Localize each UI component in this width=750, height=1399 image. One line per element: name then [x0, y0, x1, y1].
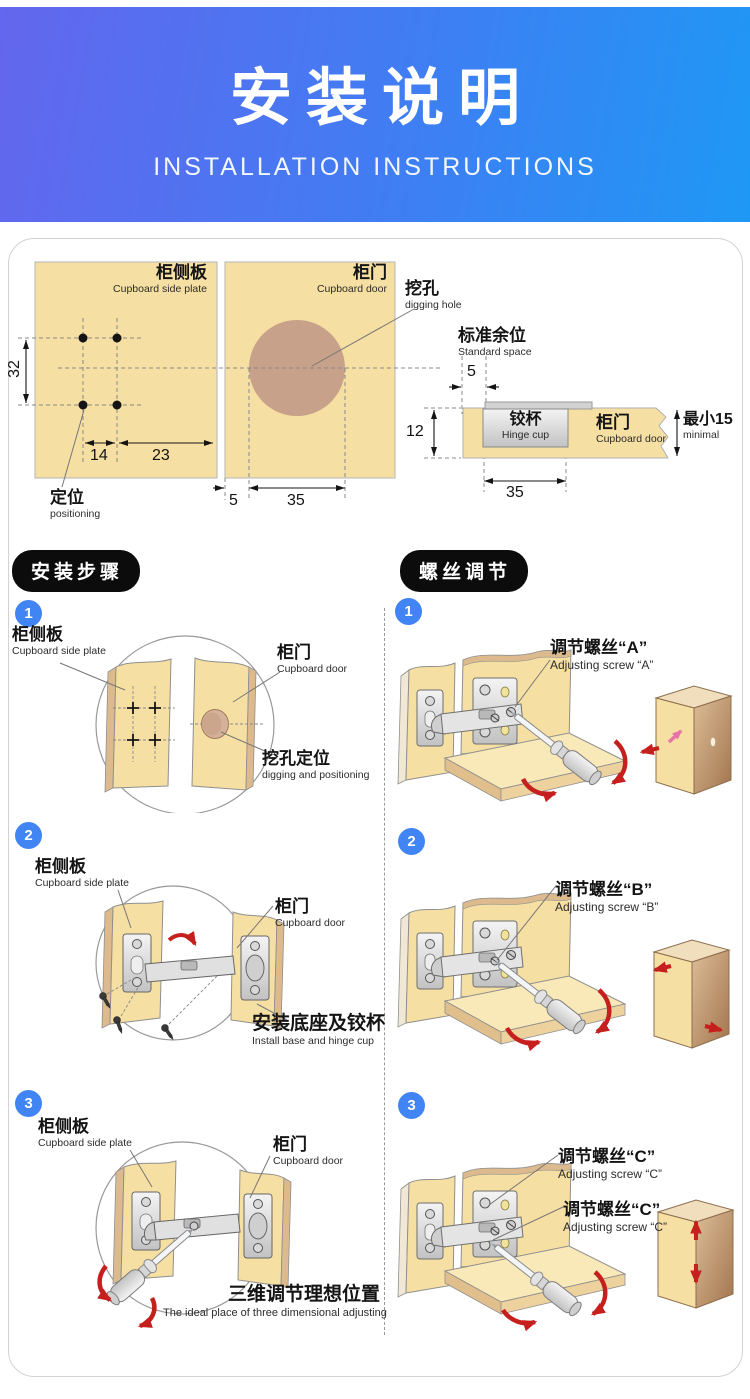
- minimal-label: 最小15 minimal: [683, 411, 733, 442]
- dim-edge-5: 5: [229, 492, 238, 510]
- label-cn: 调节螺丝“A”: [550, 638, 653, 658]
- digging-hole-label: 挖孔 digging hole: [405, 279, 462, 311]
- label-cn: 调节螺丝“C”: [563, 1200, 667, 1220]
- label-en: Adjusting screw “B”: [555, 900, 658, 914]
- dim-w2-23: 23: [152, 447, 170, 465]
- note-cn: 安装底座及铰杯: [252, 1013, 385, 1035]
- dim-space-5: 5: [467, 363, 476, 381]
- label-cn: 调节螺丝“C”: [558, 1147, 662, 1167]
- cabinet-box: [658, 1200, 733, 1308]
- page-subtitle: INSTALLATION INSTRUCTIONS: [153, 153, 597, 182]
- page-title: 安装说明: [216, 47, 534, 137]
- label-en: Cupboard side plate: [12, 645, 106, 658]
- minimal-cn: 最小15: [683, 411, 733, 429]
- install-step2-note: 安装底座及铰杯 Install base and hinge cup: [252, 1013, 385, 1047]
- install-step3-note-en: The ideal place of three dimensional adj…: [163, 1307, 387, 1320]
- label-cn: 柜门: [273, 1135, 343, 1155]
- label-en: Adjusting screw “C”: [563, 1220, 667, 1234]
- digging-label-en: digging hole: [405, 299, 462, 312]
- adjust-section-title: 螺丝调节: [400, 550, 528, 592]
- install-step3-note-cn: 三维调节理想位置: [228, 1284, 380, 1306]
- positioning-cn: 定位: [50, 488, 100, 508]
- install-section-title: 安装步骤: [12, 550, 140, 592]
- label-en: Cupboard door: [273, 1155, 343, 1168]
- standard-space-label: 标准余位 Standard space: [458, 326, 532, 358]
- cup-label-cn: 铰杯: [483, 411, 568, 429]
- label-cn: 柜侧板: [38, 1117, 132, 1137]
- hinge-cup: [246, 955, 264, 981]
- label-en: Cupboard door: [277, 663, 347, 676]
- door-label-cn: 柜门: [250, 263, 387, 283]
- label-cn: 柜侧板: [35, 857, 129, 877]
- side-plate-label: 柜侧板 Cupboard side plate: [70, 263, 207, 295]
- dim-thick-12: 12: [406, 423, 424, 441]
- door-dot: [711, 738, 716, 747]
- dim-hole-35: 35: [287, 492, 305, 510]
- adjust-step3-badge: 3: [398, 1092, 425, 1119]
- cross-door-en: Cupboard door: [596, 433, 666, 446]
- minimal-en: minimal: [683, 429, 733, 442]
- label-en: Adjusting screw “A”: [550, 658, 653, 672]
- standard-label-en: Standard space: [458, 346, 532, 359]
- cup-label-en: Hinge cup: [483, 429, 568, 442]
- install-step1-note: 挖孔定位 digging and positioning: [262, 749, 369, 781]
- label-en: Cupboard door: [275, 917, 345, 930]
- adjust-step3-label2: 调节螺丝“C” Adjusting screw “C”: [563, 1200, 667, 1234]
- page: 安装说明 INSTALLATION INSTRUCTIONS: [0, 0, 750, 1399]
- install-step2-door-label: 柜门 Cupboard door: [275, 897, 345, 929]
- hinge-cup-flange: [485, 402, 592, 409]
- dim-cup-35: 35: [506, 484, 524, 502]
- side-plate-label-en: Cupboard side plate: [70, 283, 207, 296]
- install-step2-side-label: 柜侧板 Cupboard side plate: [35, 857, 129, 889]
- standard-label-cn: 标准余位: [458, 326, 532, 346]
- note-cn: 挖孔定位: [262, 749, 369, 769]
- label-cn: 柜门: [275, 897, 345, 917]
- note-en: Install base and hinge cup: [252, 1035, 385, 1048]
- label-en: Adjusting screw “C”: [558, 1167, 662, 1181]
- install-step1-badge: 1: [15, 600, 42, 627]
- note-en: digging and positioning: [262, 769, 369, 782]
- label-cn: 柜门: [277, 643, 347, 663]
- label-cn: 柜侧板: [12, 625, 106, 645]
- cross-door-cn: 柜门: [596, 413, 666, 433]
- cabinet-box: [656, 686, 731, 794]
- adjust-step3-label1: 调节螺丝“C” Adjusting screw “C”: [558, 1147, 662, 1181]
- adjust-step2-badge: 2: [398, 828, 425, 855]
- install-step2-badge: 2: [15, 822, 42, 849]
- install-step3-side-label: 柜侧板 Cupboard side plate: [38, 1117, 132, 1149]
- adjust-step2-label: 调节螺丝“B” Adjusting screw “B”: [555, 880, 658, 914]
- digging-label-cn: 挖孔: [405, 279, 462, 299]
- label-cn: 调节螺丝“B”: [555, 880, 658, 900]
- door-label: 柜门 Cupboard door: [250, 263, 387, 295]
- door-label-en: Cupboard door: [250, 283, 387, 296]
- adjust-step1-badge: 1: [395, 598, 422, 625]
- dim-w1-14: 14: [90, 447, 108, 465]
- label-en: Cupboard side plate: [35, 877, 129, 890]
- header-banner: 安装说明 INSTALLATION INSTRUCTIONS: [0, 7, 750, 222]
- install-step1-side-label: 柜侧板 Cupboard side plate: [12, 625, 106, 657]
- hinge-cup-label: 铰杯 Hinge cup: [483, 411, 568, 442]
- positioning-label: 定位 positioning: [50, 488, 100, 520]
- cabinet-box: [654, 940, 729, 1048]
- side-plate-label-cn: 柜侧板: [70, 263, 207, 283]
- install-step1-door-label: 柜门 Cupboard door: [277, 643, 347, 675]
- cross-door-label: 柜门 Cupboard door: [596, 413, 666, 445]
- install-step3-door-label: 柜门 Cupboard door: [273, 1135, 343, 1167]
- install-step3-badge: 3: [15, 1090, 42, 1117]
- positioning-en: positioning: [50, 508, 100, 521]
- dim-height-32: 32: [6, 360, 24, 378]
- label-en: Cupboard side plate: [38, 1137, 132, 1150]
- adjust-step1-label: 调节螺丝“A” Adjusting screw “A”: [550, 638, 653, 672]
